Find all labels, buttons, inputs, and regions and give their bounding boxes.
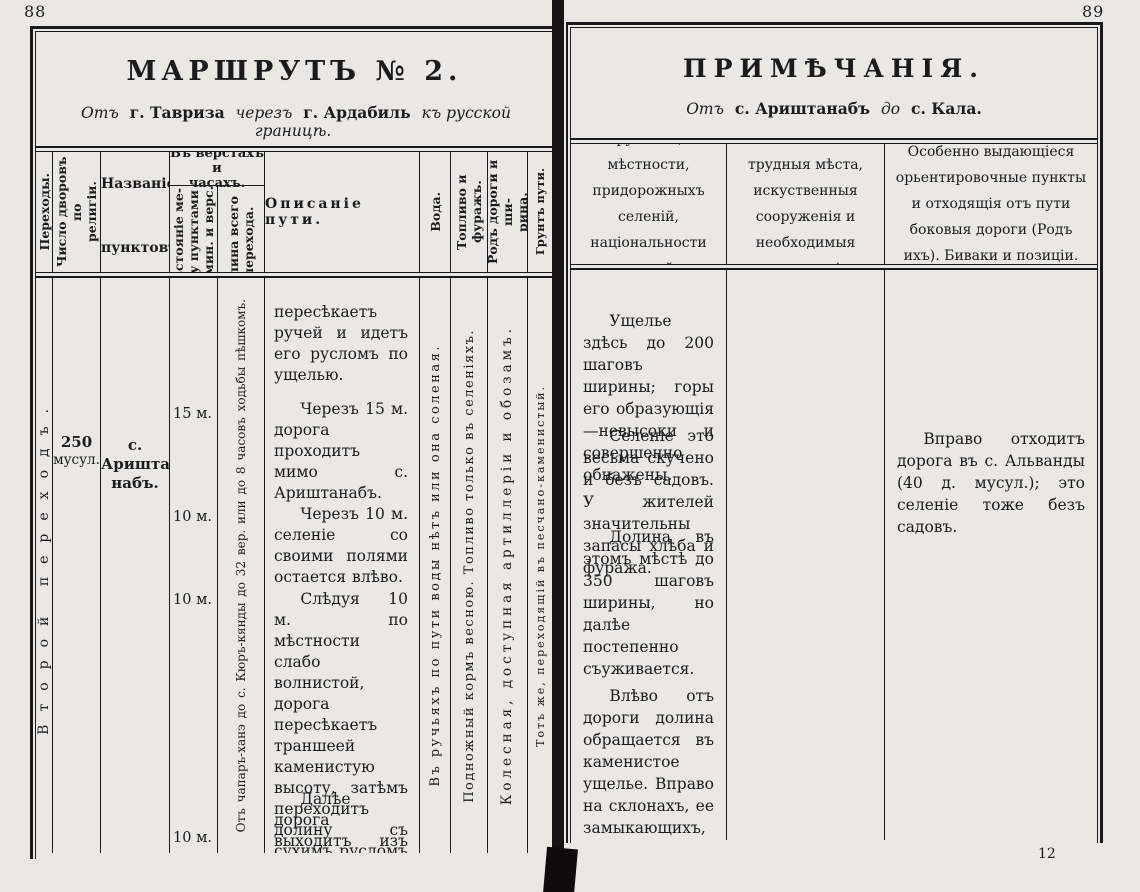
subtitle-via-word: черезъ bbox=[236, 104, 293, 122]
signature-mark: 12 bbox=[1038, 846, 1056, 862]
right-table-header: Свойство окружающей мѣстности, придорожн… bbox=[571, 144, 1097, 264]
header-water: Вода. bbox=[420, 152, 451, 272]
header-terrain: Свойство окружающей мѣстности, придорожн… bbox=[571, 144, 727, 264]
header-surface: Грунтъ пути. bbox=[528, 152, 553, 272]
note-paragraph: Влѣво отъ дороги долина обращается въ ка… bbox=[583, 685, 714, 840]
notes-subtitle: Отъ с. Ариштанабъ до с. Кала. bbox=[571, 99, 1097, 118]
header-transitions: Переходы. bbox=[36, 152, 53, 272]
cell-point-name: с. Аришта- набъ. bbox=[101, 278, 170, 853]
left-route-table: МАРШРУТЪ № 2. Отъ г. Тавриза черезъ г. А… bbox=[30, 26, 559, 859]
distance-value: 15 м. bbox=[170, 406, 212, 422]
subtitle-via-place: г. Ардабиль bbox=[303, 103, 410, 122]
note-paragraph: Вправо отходитъ дорога въ с. Альванды (4… bbox=[897, 428, 1085, 538]
right-title-block: ПРИМѢЧАНІЯ. Отъ с. Ариштанабъ до с. Кала… bbox=[571, 28, 1097, 138]
header-route-description: Описаніе пути. bbox=[265, 152, 420, 272]
subtitle-from-word: Отъ bbox=[686, 100, 724, 118]
header-distance-between: Разстояніе ме- жду пунктами въ мин. и ве… bbox=[170, 186, 218, 272]
route-paragraph: пересѣкаетъ ручей и идетъ его русломъ по… bbox=[274, 302, 408, 386]
cell-fuel: Подножный кормъ весною. Топливо только в… bbox=[451, 278, 488, 853]
subtitle-from-place: с. Ариштанабъ bbox=[735, 99, 870, 118]
route-subtitle: Отъ г. Тавриза черезъ г. Ардабиль къ рус… bbox=[36, 103, 553, 140]
book-spine-shadow-bottom bbox=[543, 847, 578, 892]
cell-terrain-notes: Ущелье здѣсь до 200 шаговъ ширины; горы … bbox=[571, 270, 727, 840]
notes-title: ПРИМѢЧАНІЯ. bbox=[571, 28, 1097, 83]
subtitle-to-word: до bbox=[881, 100, 900, 118]
cell-landmarks: Вправо отходитъ дорога въ с. Альванды (4… bbox=[885, 270, 1097, 840]
cell-surface: Тотъ же, переходящій въ песчано-каменист… bbox=[528, 278, 553, 853]
cell-transition: Второй переходъ. bbox=[36, 278, 53, 853]
distance-value: 10 м. bbox=[170, 830, 212, 846]
header-versts-group: Въ верстахъ и часахъ. Разстояніе ме- жду… bbox=[170, 152, 265, 272]
left-title-block: МАРШРУТЪ № 2. Отъ г. Тавриза черезъ г. А… bbox=[36, 32, 553, 146]
book-spread: 88 89 МАРШРУТЪ № 2. Отъ г. Тавриза через… bbox=[0, 0, 1140, 892]
right-page-number: 89 bbox=[1082, 2, 1104, 21]
header-landmarks: Особенно выдающіеся орьентировочные пунк… bbox=[885, 144, 1097, 264]
header-difficult-places: Наиболѣе трудныя мѣста, искуственныя соо… bbox=[727, 144, 885, 264]
right-table-body: Ущелье здѣсь до 200 шаговъ ширины; горы … bbox=[571, 270, 1097, 840]
cell-water: Въ ручьяхъ по пути воды нѣтъ или она сол… bbox=[420, 278, 451, 853]
route-paragraph: Черезъ 10 м. селеніе со своими полями ос… bbox=[274, 504, 408, 588]
header-road-type: Родъ дороги и ши- рина. bbox=[488, 152, 528, 272]
distance-value: 10 м. bbox=[170, 509, 212, 525]
route-paragraph: Далѣе дорога выходитъ изъ долины и въ об… bbox=[274, 789, 408, 853]
subtitle-to-place: с. Кала. bbox=[911, 99, 982, 118]
right-notes-table: ПРИМѢЧАНІЯ. Отъ с. Ариштанабъ до с. Кала… bbox=[566, 22, 1103, 843]
route-paragraph: Черезъ 15 м. дорога проходитъ мимо с. Ар… bbox=[274, 399, 408, 504]
cell-total-length: Отъ чапаръ-ханэ до с. Кюръ-кянды до 32 в… bbox=[218, 278, 265, 853]
cell-road: Колесная, доступная артиллеріи и обозамъ… bbox=[488, 278, 528, 853]
header-total-length: Длина всего перехода. bbox=[218, 186, 264, 272]
header-fuel-forage: Топливо и фуражъ. bbox=[451, 152, 488, 272]
cell-distances: 15 м. 10 м. 10 м. 10 м. bbox=[170, 278, 218, 853]
left-table-header: Переходы. Число дворовъ по религіи. Назв… bbox=[36, 152, 553, 272]
cell-households: 250 мусул. bbox=[53, 278, 101, 853]
header-point-names: Названіе пунктовъ. bbox=[101, 152, 170, 272]
cell-route-description: пересѣкаетъ ручей и идетъ его русломъ по… bbox=[265, 278, 420, 853]
left-table-body: Второй переходъ. 250 мусул. с. Аришта- н… bbox=[36, 278, 553, 853]
distance-value: 10 м. bbox=[170, 592, 212, 608]
note-paragraph: Долина въ этомъ мѣстѣ до 350 шаговъ шири… bbox=[583, 526, 714, 680]
book-spine-shadow bbox=[552, 0, 564, 892]
cell-difficult-places bbox=[727, 270, 885, 840]
subtitle-from-place: г. Тавриза bbox=[130, 103, 225, 122]
subtitle-from-word: Отъ bbox=[81, 104, 119, 122]
route-title: МАРШРУТЪ № 2. bbox=[36, 32, 553, 87]
left-page-number: 88 bbox=[24, 2, 46, 21]
header-households: Число дворовъ по религіи. bbox=[53, 152, 101, 272]
